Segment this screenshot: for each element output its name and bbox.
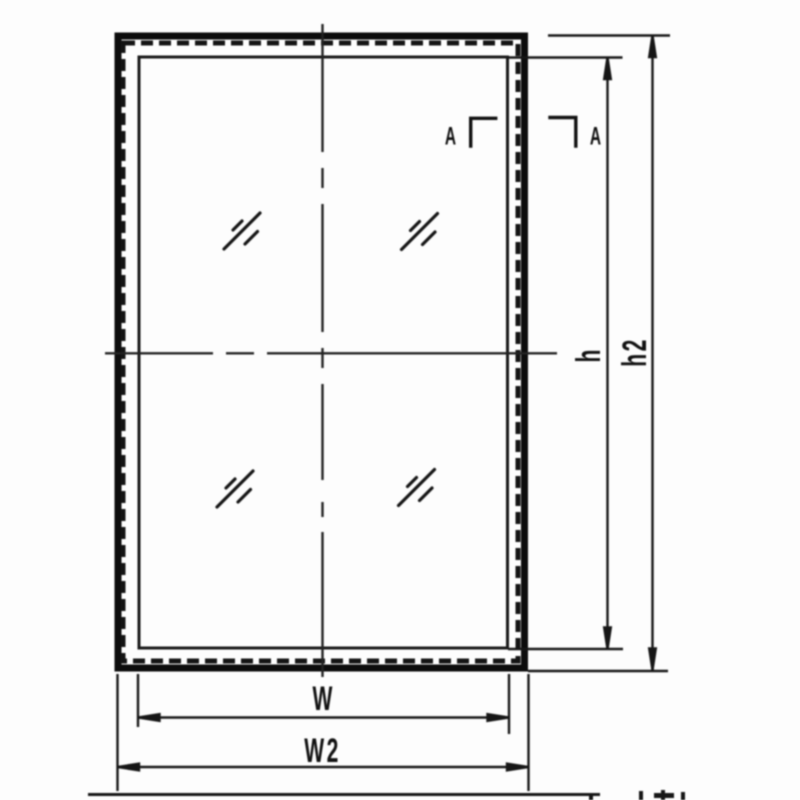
svg-text:W: W — [313, 679, 333, 717]
svg-text:A: A — [590, 123, 601, 151]
svg-text:A: A — [445, 123, 456, 151]
svg-text:h: h — [569, 350, 607, 363]
svg-text:W2: W2 — [304, 731, 341, 769]
svg-text:h2: h2 — [615, 337, 653, 367]
